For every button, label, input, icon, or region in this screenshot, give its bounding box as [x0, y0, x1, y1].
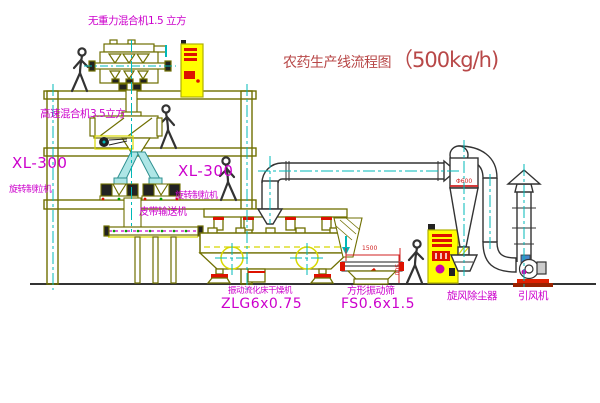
diagram-title: 农药生产线流程图 （500kg/h) [283, 44, 498, 74]
dim-screen-length: 1500 [362, 246, 377, 252]
label-top-mixer: 无重力混合机1.5 立方 [88, 16, 186, 27]
label-belt-conveyor: 皮带输送机 [139, 208, 187, 218]
y-chute [114, 152, 162, 184]
title-capacity: （500kg/h) [392, 44, 498, 74]
label-granulator-mid-model: XL-300 [178, 164, 233, 179]
worker-figure-right [407, 240, 423, 283]
label-floor2-mixer: 高速混合机3.5立方 [40, 109, 125, 120]
control-cabinet-top [181, 40, 203, 97]
label-granulator-mid-name: 旋转制粒机 [175, 192, 218, 201]
label-cyclone: 旋风除尘器 [447, 291, 497, 302]
label-dryer-name: 振动流化床干燥机 [228, 287, 292, 296]
label-granulator-left-name: 旋转制粒机 [9, 186, 52, 195]
control-cabinet-screen [428, 224, 458, 283]
label-granulator-left-model: XL-300 [12, 156, 67, 171]
belt-conveyor [104, 226, 203, 283]
title-text: 农药生产线流程图 [283, 52, 391, 72]
label-fan: 引风机 [518, 291, 548, 302]
dim-screen-height: 500 [393, 264, 399, 275]
label-dryer-model: ZLG6x0.75 [221, 297, 302, 311]
gravity-free-mixer [84, 40, 176, 115]
dim-cyclone-diameter: Φ600 [456, 179, 472, 185]
label-screen-model: FS0.6x1.5 [341, 297, 415, 311]
cad-process-flow-screenshot: 农药生产线流程图 （500kg/h) 无重力混合机1.5 立方 高速混合机3.5… [0, 0, 600, 403]
